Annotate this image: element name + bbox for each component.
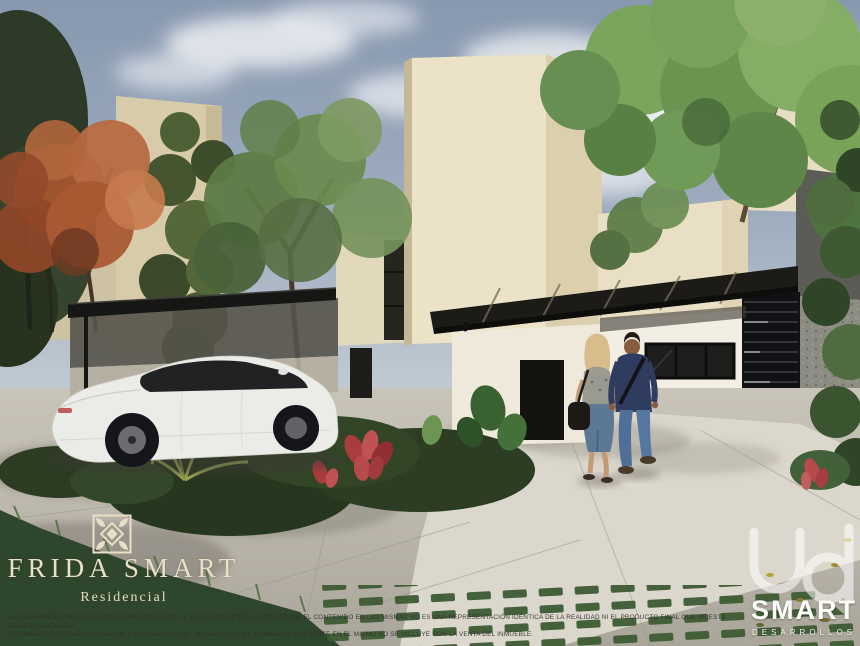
render-image: FRIDA SMART Residencial LAS SIGUIENTES I… [0,0,860,646]
handbag [568,402,590,430]
right-window [646,344,734,378]
grass-paver-grid [310,585,860,646]
scene-graphic [0,0,860,646]
